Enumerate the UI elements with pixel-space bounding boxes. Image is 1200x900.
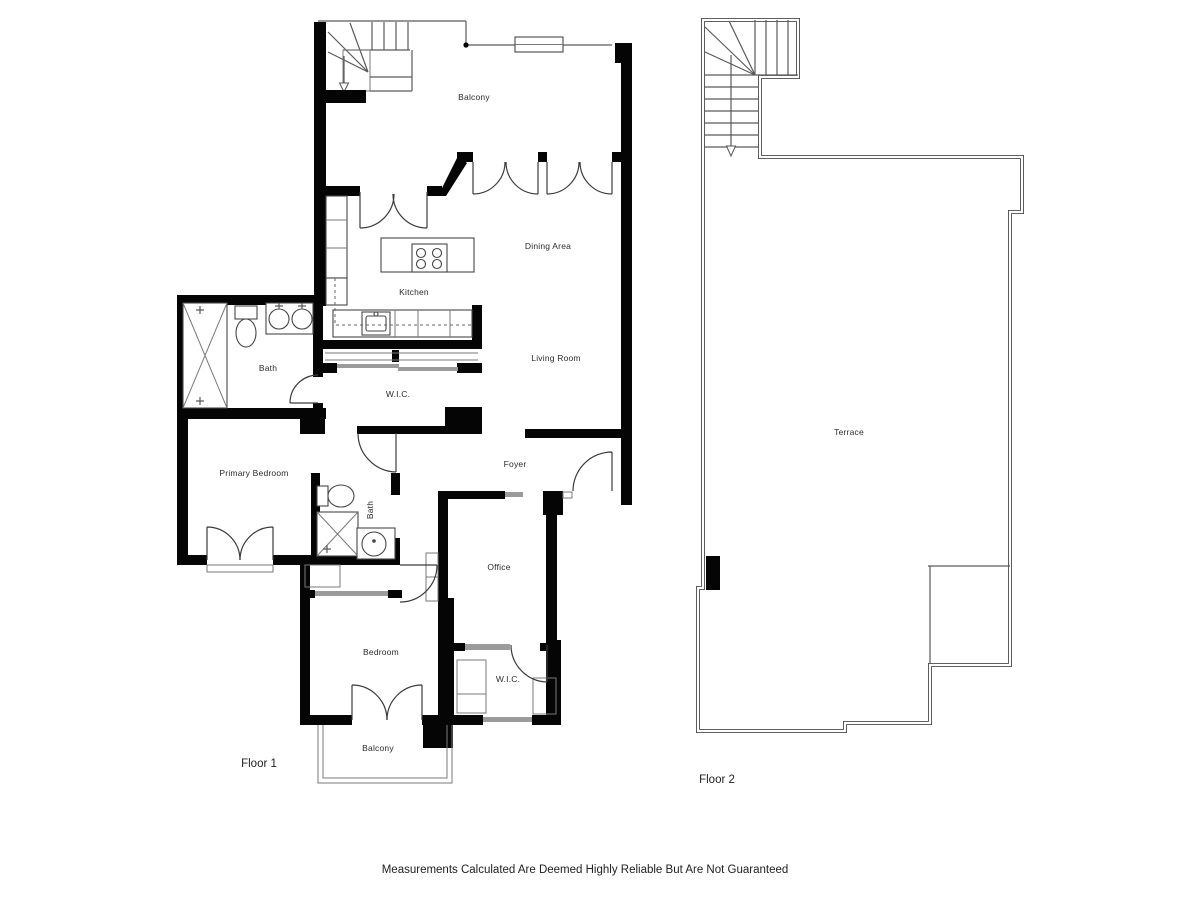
toilet-icon — [317, 485, 354, 507]
bottom-balcony-outline — [207, 565, 452, 783]
room-label-living-room: Living Room — [531, 353, 580, 363]
floor1-plan: Balcony Kitchen Dining Area Living Room … — [177, 21, 632, 783]
room-label-balcony-bottom: Balcony — [362, 743, 394, 753]
floorplan-page: Balcony Kitchen Dining Area Living Room … — [0, 0, 1200, 900]
primary-bath-fixtures — [183, 303, 313, 408]
room-label-foyer: Foyer — [504, 459, 527, 469]
room-label-terrace: Terrace — [834, 427, 864, 437]
round-sink-icon — [357, 528, 395, 559]
shower-icon — [183, 303, 227, 408]
floor2-plan: Terrace Floor 2 — [698, 20, 1022, 786]
toilet-icon — [235, 306, 257, 347]
room-label-primary-bedroom: Primary Bedroom — [219, 468, 288, 478]
room-label-bedroom: Bedroom — [363, 647, 399, 657]
terrace-pillar — [706, 556, 720, 590]
room-label-bath2: Bath — [365, 501, 375, 519]
room-label-wic: W.I.C. — [386, 389, 410, 399]
room-label-office: Office — [487, 562, 510, 572]
room-label-dining-area: Dining Area — [525, 241, 571, 251]
kitchen-sink-icon — [362, 312, 390, 335]
floor1-walls — [177, 22, 632, 748]
terrace-outline — [698, 20, 1022, 731]
staircase-floor2 — [704, 20, 798, 156]
staircase-floor1 — [328, 22, 412, 92]
balcony-railing — [318, 21, 612, 52]
floor1-label: Floor 1 — [241, 758, 277, 770]
stove-island-icon — [381, 238, 474, 272]
disclaimer-text: Measurements Calculated Are Deemed Highl… — [382, 864, 789, 876]
room-label-bath: Bath — [259, 363, 277, 373]
floor2-label: Floor 2 — [699, 774, 735, 786]
room-label-balcony-top: Balcony — [458, 92, 490, 102]
double-sink-icon — [266, 303, 313, 334]
room-label-wic2: W.I.C. — [496, 674, 520, 684]
closet-shelves — [305, 553, 556, 714]
room-label-kitchen: Kitchen — [399, 287, 429, 297]
stairs-down-arrow-icon — [727, 55, 736, 156]
kitchen-counters — [326, 196, 474, 337]
floor-plan-drawing: Balcony Kitchen Dining Area Living Room … — [0, 0, 1200, 900]
small-bath-fixtures — [317, 485, 395, 559]
shower-icon — [317, 512, 358, 556]
